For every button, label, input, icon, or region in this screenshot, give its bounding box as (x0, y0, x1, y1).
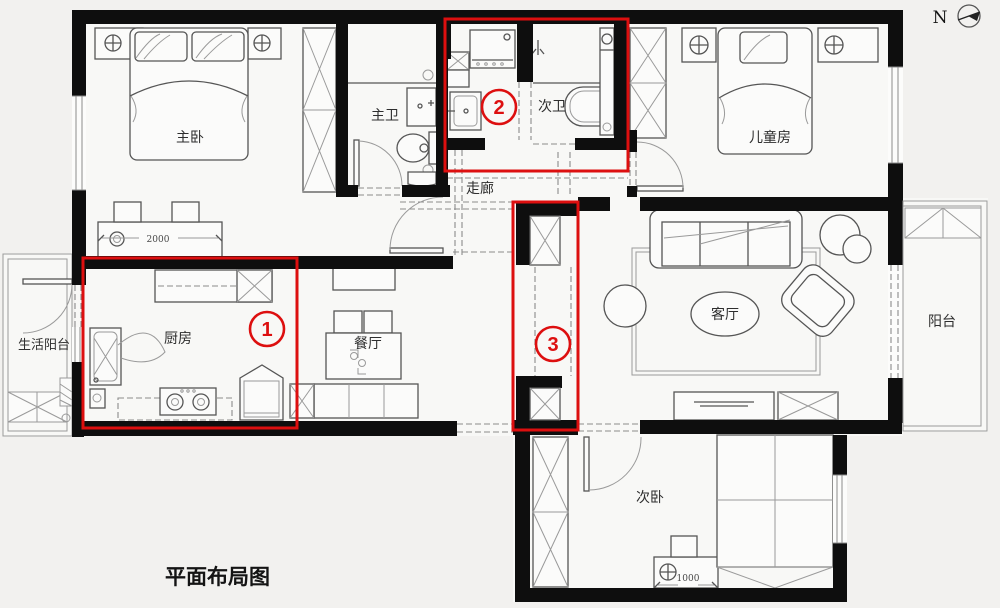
north-label: N (933, 8, 948, 28)
master-wardrobe (303, 28, 336, 192)
room-label-service-balcony: 生活阳台 (18, 338, 70, 353)
room-label-dining: 餐厅 (354, 336, 382, 352)
second-wardrobe (533, 437, 568, 587)
window-kids-east (888, 67, 903, 163)
sideboard (333, 268, 395, 290)
stove (160, 388, 216, 415)
sofa (650, 210, 802, 268)
dining-chair (364, 311, 392, 333)
washing-machine (470, 30, 515, 68)
room-label-living: 客厅 (711, 306, 739, 323)
door-leaf (390, 248, 443, 253)
dining-chair (334, 311, 362, 333)
door-leaf (584, 437, 589, 491)
room-label-kitchen: 厨房 (164, 331, 192, 347)
plan-title: 平面布局图 (165, 565, 270, 589)
window-secbed-east (833, 475, 847, 543)
floor-plan-page: 2000 (0, 0, 1000, 608)
toilet (397, 132, 437, 164)
room-label-second-bedroom: 次卧 (636, 490, 664, 506)
door-leaf (354, 140, 359, 186)
floor-plan-drawing: 2000 (0, 0, 1000, 608)
tv-cabinet (674, 392, 774, 420)
side-table (604, 285, 646, 327)
compass-needle (968, 12, 980, 21)
dimension-label: 1000 (677, 574, 700, 584)
door-leaf (637, 186, 683, 191)
room-label-master-bedroom: 主卧 (176, 130, 204, 146)
dining-bench (314, 384, 418, 418)
balcony-sliding-door (888, 265, 903, 378)
marker-1-number: 1 (261, 319, 272, 341)
room-label-master-bath: 主卫 (371, 108, 399, 124)
door-leaf (23, 279, 72, 284)
marker-3-number: 3 (547, 334, 558, 356)
dimension-label: 2000 (147, 235, 170, 245)
room-label-second-bath: 次卫 (538, 99, 566, 115)
window-master-west (72, 96, 86, 190)
north-arrow: N (933, 5, 980, 28)
kids-wardrobe (630, 28, 666, 138)
room-label-kids-room: 儿童房 (749, 129, 791, 146)
second-bed (717, 435, 833, 588)
room-label-balcony: 阳台 (928, 314, 956, 330)
marker-2-number: 2 (493, 97, 504, 119)
room-label-corridor: 走廊 (466, 180, 494, 197)
shower-tray (408, 172, 436, 186)
